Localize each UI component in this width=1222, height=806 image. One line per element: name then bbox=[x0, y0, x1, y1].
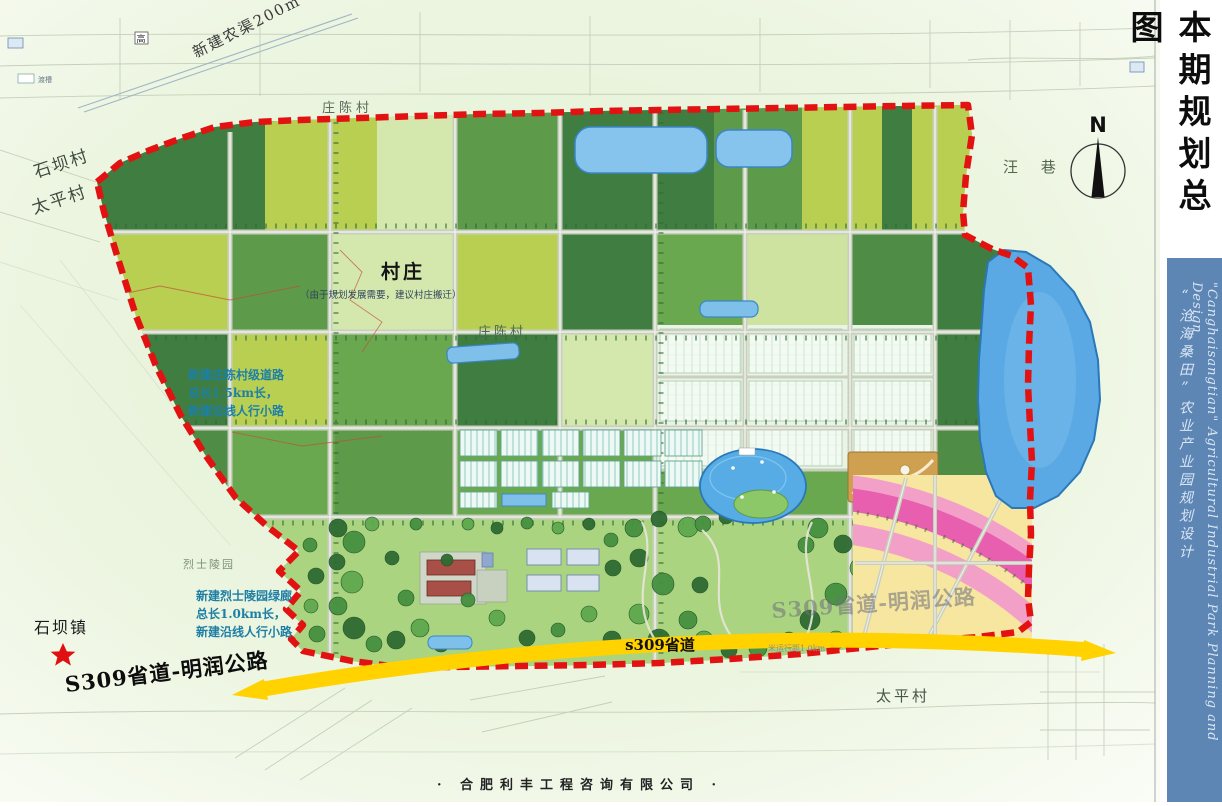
label-taiping-bottom: 太平村 bbox=[876, 687, 930, 705]
greenway-note-line3: 新建沿线人行小路 bbox=[196, 624, 293, 639]
blue-roof-building bbox=[567, 575, 599, 591]
blue-roof-building bbox=[527, 575, 561, 591]
pavilion bbox=[739, 448, 755, 455]
blue-roof-building bbox=[567, 549, 599, 565]
label-village-title: 村庄 bbox=[381, 260, 425, 283]
sheet-title: 本期规划总图 bbox=[1170, 10, 1216, 260]
lake-top-right bbox=[716, 130, 792, 167]
label-s309-band: s309省道 bbox=[625, 636, 695, 654]
master-plan-map: N 新建农渠200m 庄陈村 石坝村 太平村 村庄 （由于规划发展需要，建议村庄… bbox=[0, 0, 1160, 802]
irrigation-pond-small bbox=[502, 494, 546, 506]
label-martyrs-park: 烈士陵园 bbox=[183, 557, 235, 571]
label-right-small-note: 米运行距1.0km bbox=[768, 643, 826, 653]
project-banner: "Canghaisangtian" Agricultural Industria… bbox=[1167, 258, 1222, 802]
lake-top-left bbox=[575, 127, 707, 173]
pond-bottom bbox=[428, 636, 472, 649]
label-wangxiang: 汪 巷 bbox=[1003, 158, 1065, 176]
pond-island bbox=[734, 490, 788, 518]
company-footer: · 合肥利丰工程咨询有限公司 · bbox=[0, 774, 1160, 793]
label-shiba-town: 石坝镇 bbox=[34, 618, 88, 637]
road-note-line3: 新建沿线人行小路 bbox=[188, 403, 285, 418]
road-note-line1: 新建庄陈村级道路 bbox=[188, 367, 285, 382]
road-note-line2: 总长1.5km长， bbox=[188, 385, 278, 400]
compass-n-label: N bbox=[1089, 113, 1107, 137]
greenway-note-line2: 总长1.0km长， bbox=[196, 606, 286, 621]
pond-mid bbox=[700, 301, 758, 317]
label-tiny-ducao: 渡槽 bbox=[38, 75, 52, 84]
project-banner-chinese: “沧海桑田”农业产业园规划设计 bbox=[1175, 288, 1195, 768]
blue-roof-building bbox=[527, 549, 561, 565]
label-zhuangchen-mid: 庄陈村 bbox=[478, 324, 526, 340]
label-zhuangchen-top: 庄陈村 bbox=[322, 100, 373, 116]
label-tiny-gao: 高 bbox=[136, 33, 145, 45]
label-village-note: （由于规划发展需要，建议村庄搬迁） bbox=[300, 289, 462, 301]
greenway-note-line1: 新建烈士陵园绿廊 bbox=[196, 588, 292, 603]
planning-map-sheet: N 新建农渠200m 庄陈村 石坝村 太平村 村庄 （由于规划发展需要，建议村庄… bbox=[0, 0, 1222, 802]
